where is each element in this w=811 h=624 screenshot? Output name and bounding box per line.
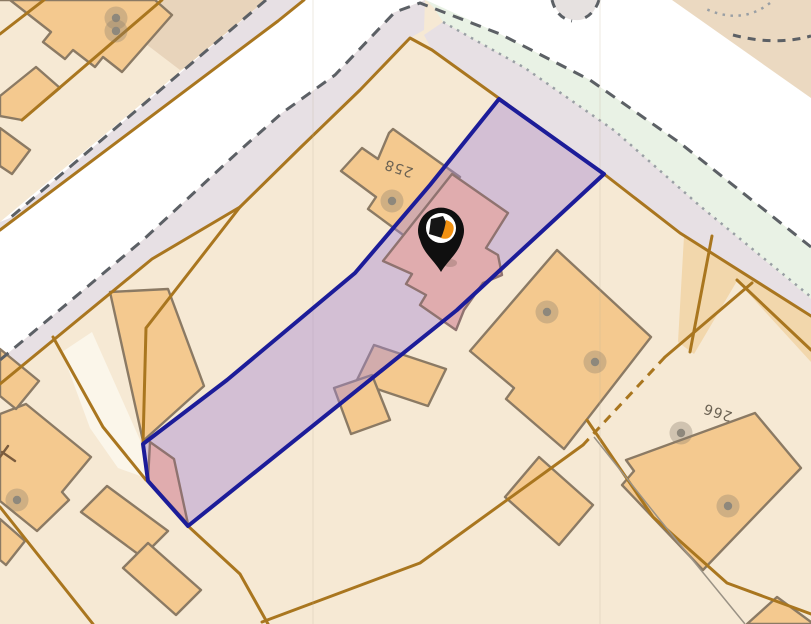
address-point-dot (543, 308, 551, 316)
address-point-dot (388, 197, 396, 205)
address-point-dot (13, 496, 21, 504)
map-container[interactable]: 258266 (0, 0, 811, 624)
address-point-dot (677, 429, 685, 437)
map-svg[interactable]: 258266 (0, 0, 811, 624)
address-point-dot (724, 502, 732, 510)
address-point-dot (112, 27, 120, 35)
address-point-dot (591, 358, 599, 366)
